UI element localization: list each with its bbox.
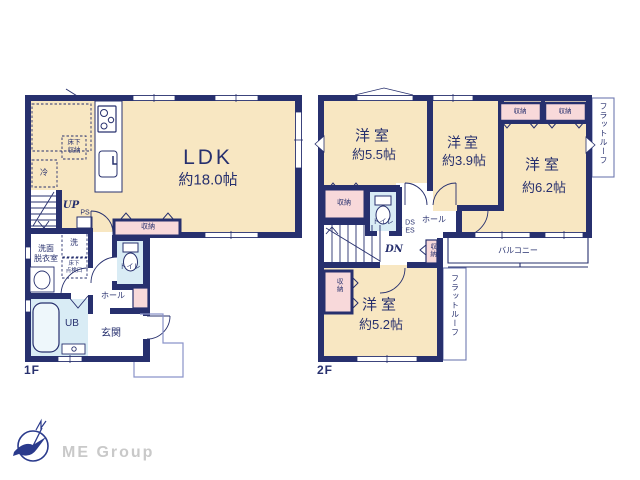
room4-area: 約5.2帖 (359, 317, 403, 333)
hall-1f-label: ホール (101, 291, 125, 301)
hall-2f-label: ホール (422, 215, 446, 225)
closet-1f-label: 収納 (141, 224, 155, 233)
balcony-label: バルコニー (498, 246, 538, 256)
washroom-label: 洗面脱衣室 (34, 244, 58, 264)
floor2-label: 2F (317, 363, 333, 378)
underfloor-hatch-label: 床下点検口 (66, 261, 83, 275)
pipe-space-box (77, 217, 92, 228)
room2-area: 約3.9帖 (442, 153, 486, 169)
floor1-label: 1F (24, 363, 40, 378)
kitchen-counter-icon (95, 101, 122, 192)
room4-name: 洋室 (362, 297, 400, 316)
compass-north-icon (13, 421, 48, 461)
es-label: ES (405, 228, 414, 237)
up-label: UP (63, 200, 79, 213)
underfloor-storage-label: 床下収納 (68, 139, 81, 155)
ps-label: PS (80, 210, 89, 219)
closet-left-label: 収納 (337, 200, 351, 209)
fridge-label: 冷 (40, 168, 48, 178)
toilet-1f-label: トイレ (120, 264, 141, 273)
laundry-label: 洗 (70, 238, 78, 248)
floor1-plan (25, 89, 303, 377)
closet-top1-label: 収納 (514, 108, 527, 116)
closet-top2-label: 収納 (559, 108, 572, 116)
closet-corridor-label: 収納 (427, 243, 435, 258)
room2-name: 洋室 (447, 134, 481, 152)
entrance-porch-outline (134, 314, 183, 377)
ldk-label: LDK (183, 145, 233, 171)
flat-roof-right-label: フラットルーフ (598, 102, 608, 165)
room3-area: 約6.2帖 (522, 180, 566, 196)
hall-storage-box (133, 288, 148, 308)
bath-label: UB (65, 318, 79, 331)
entrance-label: 玄関 (101, 328, 121, 341)
washbasin-icon (30, 267, 54, 292)
floor-plan-drawing (0, 0, 640, 480)
toilet-2f-label: トイレ (373, 219, 394, 228)
dn-label: DN (385, 244, 403, 257)
room1-name: 洋室 (355, 128, 393, 147)
flat-roof-bottom-label: フラットルーフ (450, 274, 460, 337)
room3-name: 洋室 (525, 157, 563, 176)
company-logo-text: ME Group (62, 444, 154, 462)
ldk-area-label: 約18.0帖 (178, 172, 237, 191)
floor-plan-canvas: LDK 約18.0帖 床下収納 冷 UP PS 収納 トイレ 洗 洗面脱衣室 床… (0, 0, 640, 480)
closet-bottom-left-label: 収納 (334, 278, 342, 293)
room1-area: 約5.5帖 (352, 147, 396, 163)
